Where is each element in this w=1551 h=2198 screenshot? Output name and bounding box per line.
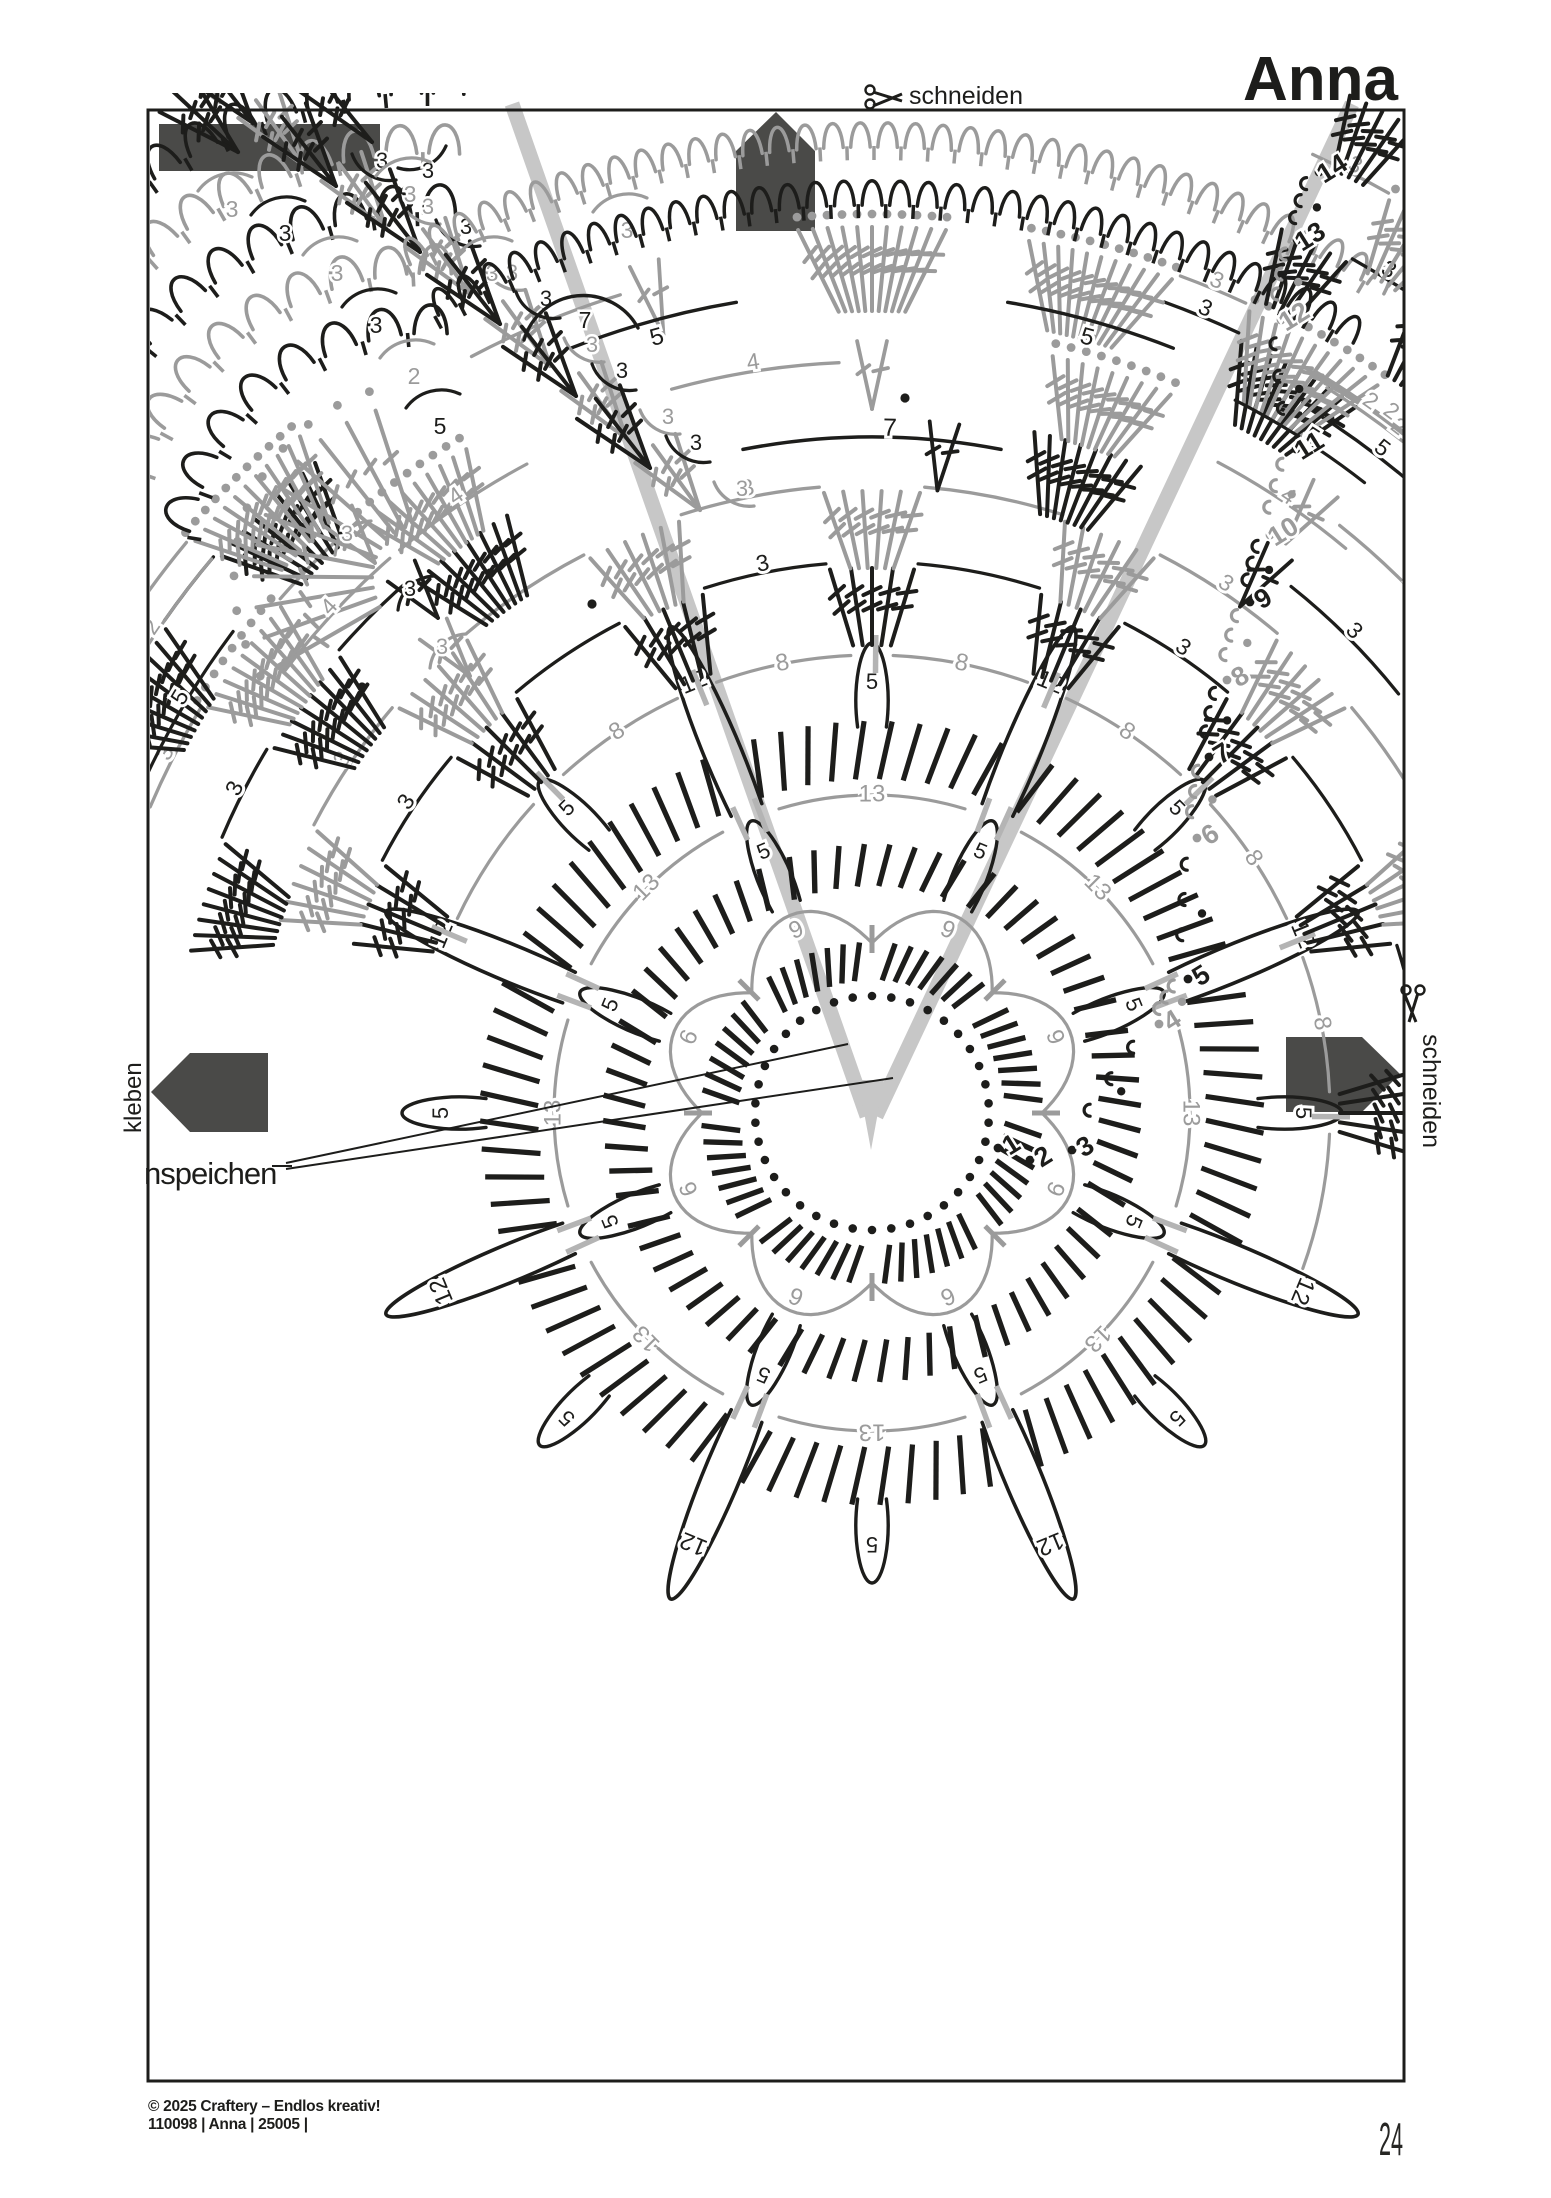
svg-text:3: 3	[331, 260, 344, 286]
svg-text:3: 3	[662, 404, 674, 429]
svg-text:3: 3	[370, 312, 383, 338]
svg-text:kleben: kleben	[120, 1062, 147, 1133]
svg-text:24: 24	[1379, 2113, 1403, 2165]
svg-text:3: 3	[736, 476, 748, 501]
svg-text:© 2025 Craftery – Endlos kreat: © 2025 Craftery – Endlos kreativ!	[148, 2098, 380, 2115]
svg-text:3: 3	[279, 220, 292, 246]
svg-text:13: 13	[859, 780, 886, 807]
svg-text:3: 3	[341, 521, 353, 546]
svg-text:3: 3	[616, 358, 628, 383]
svg-text:13: 13	[859, 1419, 886, 1446]
svg-text:5: 5	[866, 1532, 878, 1557]
svg-text:schneiden: schneiden	[1417, 1034, 1445, 1148]
svg-text:3: 3	[404, 576, 416, 601]
svg-text:3: 3	[690, 430, 702, 455]
svg-text:3: 3	[436, 634, 448, 659]
svg-text:3: 3	[586, 332, 598, 357]
svg-text:7: 7	[883, 414, 898, 442]
svg-text:110098 | Anna | 25005 |: 110098 | Anna | 25005 |	[148, 2116, 308, 2133]
svg-text:7: 7	[579, 307, 592, 333]
svg-text:schneiden: schneiden	[909, 82, 1023, 110]
svg-text:nspeichen: nspeichen	[144, 1156, 276, 1191]
svg-text:Anna: Anna	[1243, 45, 1399, 114]
svg-text:13: 13	[1178, 1100, 1205, 1127]
svg-text:3: 3	[422, 194, 434, 219]
svg-text:5: 5	[434, 413, 447, 439]
svg-text:2: 2	[408, 363, 421, 389]
svg-text:5: 5	[428, 1107, 453, 1119]
svg-text:3: 3	[226, 196, 239, 222]
svg-text:3: 3	[404, 181, 417, 207]
